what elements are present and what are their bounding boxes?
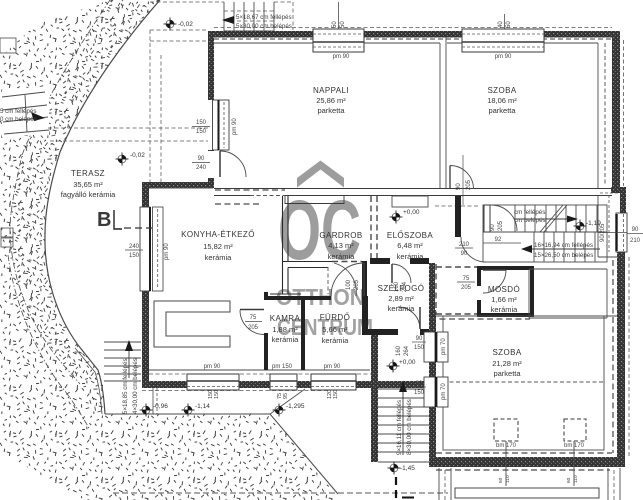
svg-text:90: 90 bbox=[416, 381, 423, 387]
svg-text:210: 210 bbox=[630, 238, 641, 244]
svg-text:110: 110 bbox=[505, 475, 511, 483]
svg-text:-1,14: -1,14 bbox=[195, 403, 210, 410]
svg-text:16×16,94 cm fellépés: 16×16,94 cm fellépés bbox=[534, 242, 593, 249]
svg-text:KONYHA-ÉTKEZŐ: KONYHA-ÉTKEZŐ bbox=[181, 230, 255, 239]
svg-text:150: 150 bbox=[129, 253, 140, 259]
svg-text:SZOBA: SZOBA bbox=[492, 348, 521, 357]
svg-text:210: 210 bbox=[459, 242, 470, 248]
svg-text:SZOBA: SZOBA bbox=[487, 86, 516, 95]
svg-text:90: 90 bbox=[456, 183, 462, 190]
svg-text:90: 90 bbox=[632, 227, 639, 233]
svg-text:100: 100 bbox=[346, 279, 352, 290]
svg-text:160: 160 bbox=[396, 345, 402, 356]
svg-text:8×30,00 cm belépés: 8×30,00 cm belépés bbox=[406, 399, 413, 455]
svg-text:95: 95 bbox=[283, 393, 289, 399]
svg-text:-1,19: -1,19 bbox=[586, 220, 601, 227]
svg-text:60: 60 bbox=[498, 477, 504, 483]
svg-text:pm 70: pm 70 bbox=[441, 338, 447, 355]
svg-text:5 cm fellépés: 5 cm fellépés bbox=[0, 108, 36, 115]
svg-text:205: 205 bbox=[248, 325, 259, 331]
svg-text:50: 50 bbox=[340, 21, 346, 28]
svg-text:B: B bbox=[97, 209, 111, 231]
svg-text:+0,00: +0,00 bbox=[399, 359, 416, 366]
svg-text:90: 90 bbox=[416, 336, 423, 342]
svg-text:1,66 m²: 1,66 m² bbox=[491, 295, 517, 304]
svg-text:pm 90: pm 90 bbox=[333, 54, 350, 60]
svg-text:75: 75 bbox=[463, 276, 470, 282]
svg-text:6,48 m²: 6,48 m² bbox=[397, 241, 423, 250]
svg-text:160: 160 bbox=[394, 281, 400, 292]
svg-text:pm 90: pm 90 bbox=[324, 364, 341, 370]
svg-text:-1,295: -1,295 bbox=[286, 403, 305, 410]
svg-text:OC: OC bbox=[278, 183, 361, 277]
svg-text:1,88 m²: 1,88 m² bbox=[272, 325, 298, 334]
svg-text:-0,02: -0,02 bbox=[130, 152, 145, 159]
svg-text:150: 150 bbox=[196, 120, 207, 126]
svg-text:150: 150 bbox=[196, 129, 207, 135]
svg-text:kerámia: kerámia bbox=[205, 253, 233, 262]
svg-text:pm 150: pm 150 bbox=[272, 364, 293, 370]
svg-text:150: 150 bbox=[414, 345, 425, 351]
svg-text:pm 90: pm 90 bbox=[495, 54, 512, 60]
svg-text:5×30,00 cm belépés: 5×30,00 cm belépés bbox=[236, 23, 292, 30]
svg-text:60: 60 bbox=[566, 477, 572, 483]
svg-text:9×16,11 cm fellépés: 9×16,11 cm fellépés bbox=[396, 400, 403, 455]
svg-text:fagyálló kerámia: fagyálló kerámia bbox=[61, 190, 116, 199]
svg-text:ELŐSZOBA: ELŐSZOBA bbox=[387, 231, 434, 240]
svg-text:4×30,00 cm belépés: 4×30,00 cm belépés bbox=[132, 358, 139, 414]
svg-text:150: 150 bbox=[333, 390, 339, 399]
svg-text:kerámia: kerámia bbox=[272, 335, 300, 344]
svg-text:90: 90 bbox=[461, 251, 468, 257]
svg-text:5×18,85 cm fellépés: 5×18,85 cm fellépés bbox=[122, 358, 129, 414]
svg-text:kerámia: kerámia bbox=[328, 252, 356, 261]
svg-text:-0,96: -0,96 bbox=[153, 403, 168, 410]
svg-text:75: 75 bbox=[250, 315, 257, 321]
svg-text:kerámia: kerámia bbox=[322, 336, 350, 345]
svg-text:parketta: parketta bbox=[317, 106, 345, 115]
svg-text:205: 205 bbox=[498, 220, 504, 231]
svg-text:-0,02: -0,02 bbox=[178, 21, 193, 28]
svg-text:50: 50 bbox=[506, 21, 512, 28]
svg-text:kerámia: kerámia bbox=[397, 252, 425, 261]
svg-text:parketta: parketta bbox=[493, 369, 521, 378]
svg-text:pm 90: pm 90 bbox=[232, 118, 238, 135]
svg-text:pm 70: pm 70 bbox=[441, 383, 447, 400]
svg-text:240: 240 bbox=[129, 244, 140, 250]
svg-text:SZÉLFOGÓ: SZÉLFOGÓ bbox=[378, 284, 425, 293]
svg-text:40: 40 bbox=[498, 21, 504, 28]
svg-text:25,86 m²: 25,86 m² bbox=[316, 96, 346, 105]
svg-text:21,28 m²: 21,28 m² bbox=[492, 359, 522, 368]
svg-text:150: 150 bbox=[214, 390, 220, 399]
svg-text:15×26,50 cm belépés: 15×26,50 cm belépés bbox=[534, 252, 593, 259]
svg-text:90: 90 bbox=[198, 156, 205, 162]
svg-text:0 cm belépés: 0 cm belépés bbox=[0, 116, 37, 123]
svg-text:pm 90: pm 90 bbox=[204, 364, 221, 370]
svg-text:150: 150 bbox=[414, 390, 425, 396]
svg-text:4,13 m²: 4,13 m² bbox=[328, 241, 354, 250]
svg-text:205: 205 bbox=[461, 285, 472, 291]
svg-text:264: 264 bbox=[404, 345, 410, 356]
svg-text:35,65 m²: 35,65 m² bbox=[73, 180, 103, 189]
svg-text:kerámia: kerámia bbox=[388, 304, 416, 313]
svg-text:92: 92 bbox=[495, 237, 502, 243]
svg-text:cm belépés: cm belépés bbox=[514, 217, 546, 224]
svg-text:+0,00: +0,00 bbox=[403, 209, 420, 216]
svg-text:5×18,67 cm fellépés: 5×18,67 cm fellépés bbox=[236, 14, 292, 21]
svg-text:MOSDÓ: MOSDÓ bbox=[488, 285, 520, 294]
svg-text:5,66 m²: 5,66 m² bbox=[322, 325, 348, 334]
svg-text:-1,45: -1,45 bbox=[400, 465, 415, 472]
svg-text:cm fellépés: cm fellépés bbox=[514, 209, 545, 216]
svg-text:2,89 m²: 2,89 m² bbox=[388, 294, 414, 303]
svg-text:pm 90: pm 90 bbox=[164, 243, 170, 260]
svg-text:parketta: parketta bbox=[488, 106, 516, 115]
svg-text:110: 110 bbox=[573, 475, 579, 483]
svg-text:KAMRA: KAMRA bbox=[270, 314, 301, 323]
svg-text:90/205: 90/205 bbox=[600, 223, 606, 242]
svg-text:NAPPALI: NAPPALI bbox=[313, 86, 349, 95]
svg-text:205: 205 bbox=[466, 179, 472, 190]
svg-text:18,06 m²: 18,06 m² bbox=[487, 96, 517, 105]
svg-text:50: 50 bbox=[332, 21, 338, 28]
svg-text:FÜRDŐ: FÜRDŐ bbox=[320, 313, 350, 322]
svg-text:90: 90 bbox=[490, 224, 496, 231]
svg-text:kerámia: kerámia bbox=[491, 305, 519, 314]
svg-text:205: 205 bbox=[354, 279, 360, 290]
svg-text:TERASZ: TERASZ bbox=[71, 169, 105, 178]
svg-text:GARDROB: GARDROB bbox=[319, 231, 362, 240]
svg-text:240: 240 bbox=[196, 165, 207, 171]
svg-text:15,82 m²: 15,82 m² bbox=[203, 242, 233, 251]
svg-text:264: 264 bbox=[402, 281, 408, 292]
